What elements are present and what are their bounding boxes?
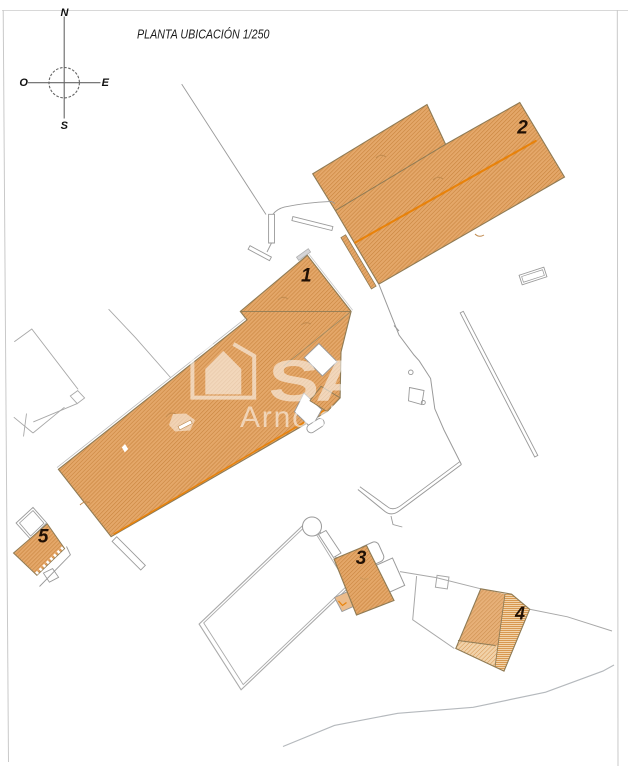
- svg-text:E: E: [102, 77, 110, 89]
- svg-text:1: 1: [301, 266, 312, 287]
- svg-text:S: S: [61, 120, 69, 132]
- svg-text:Arnold: Arnold: [240, 401, 338, 434]
- svg-text:2: 2: [516, 118, 528, 139]
- svg-text:O: O: [19, 77, 28, 89]
- svg-text:N: N: [61, 7, 70, 19]
- svg-text:5: 5: [38, 527, 49, 548]
- svg-text:3: 3: [356, 548, 367, 569]
- svg-text:PLANTA UBICACIÓN 1/250: PLANTA UBICACIÓN 1/250: [137, 27, 270, 42]
- svg-text:4: 4: [514, 604, 525, 624]
